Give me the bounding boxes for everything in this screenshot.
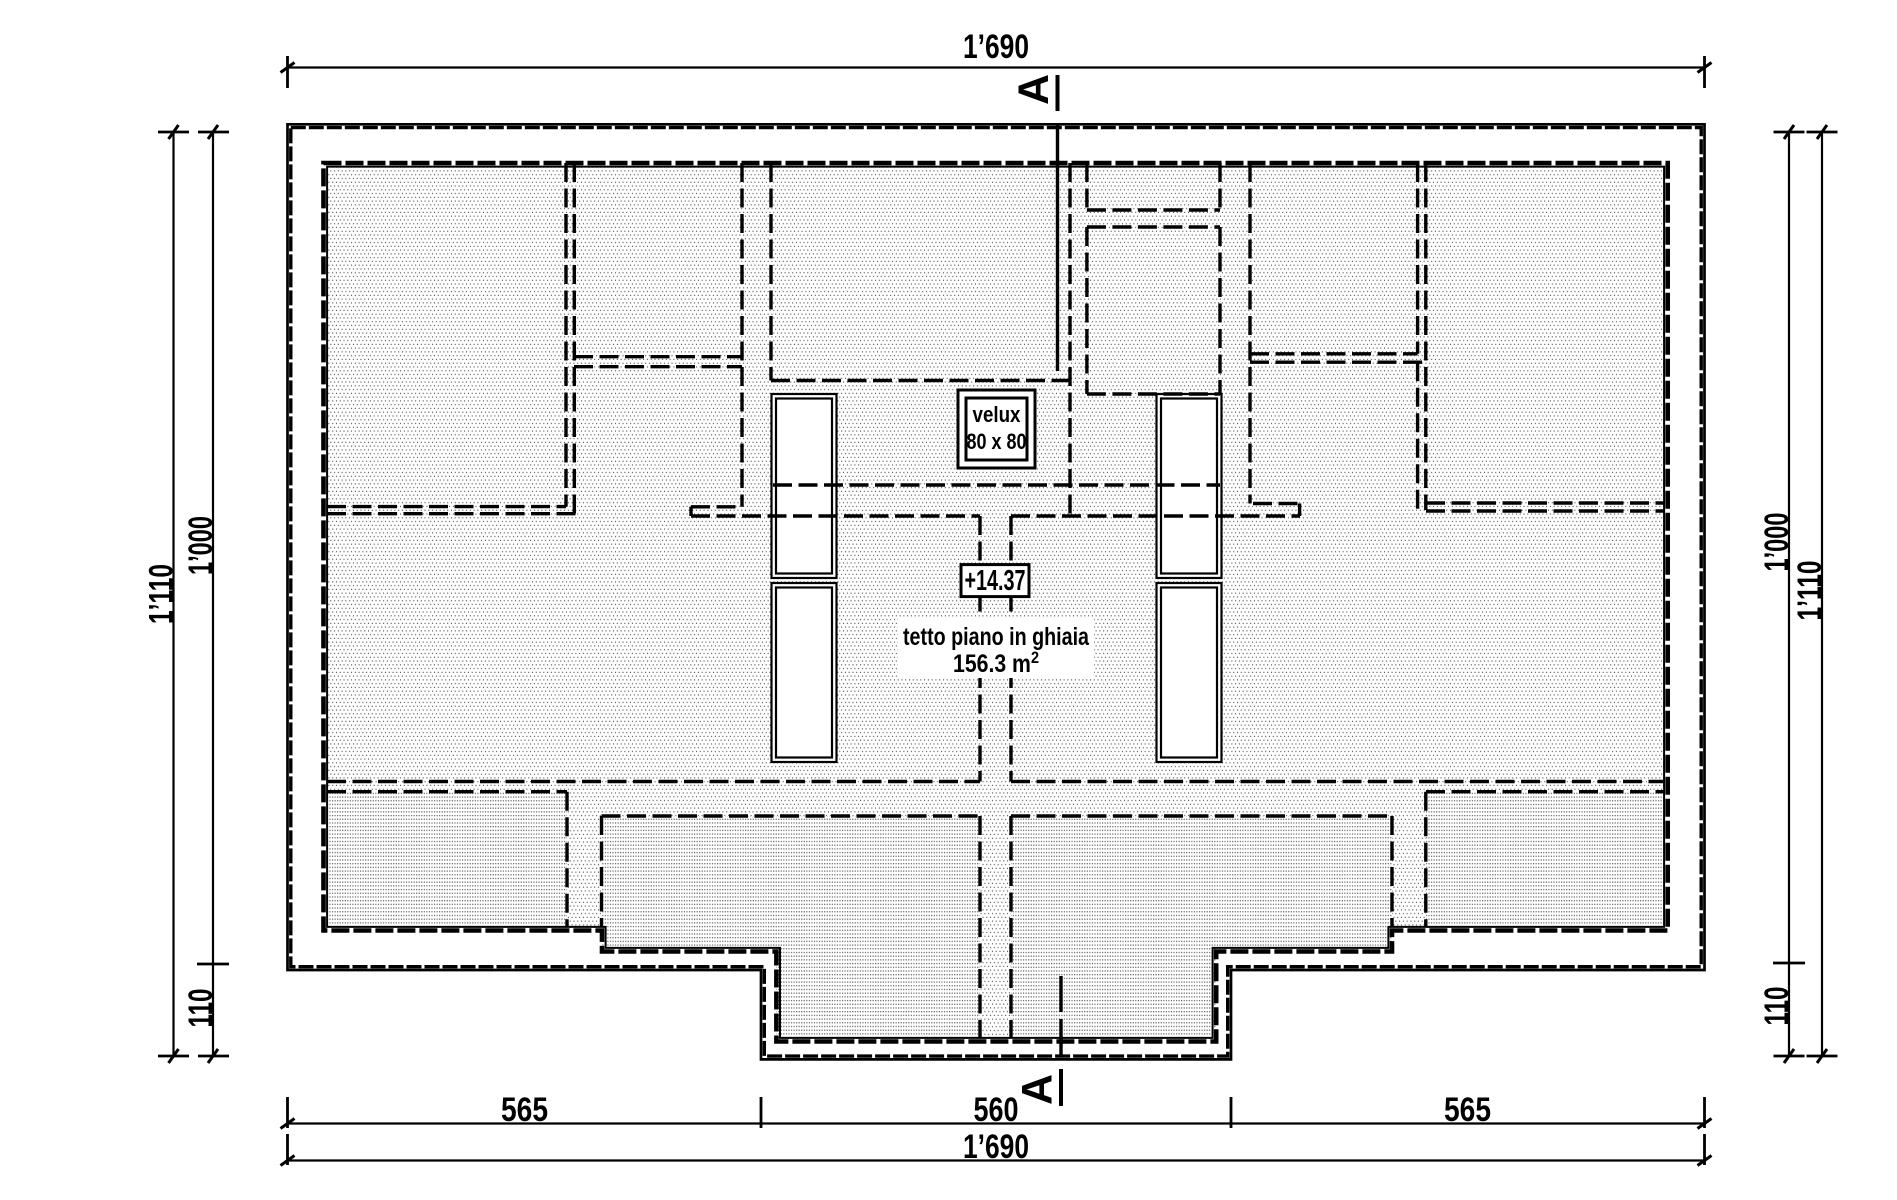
svg-text:+14.37: +14.37 (965, 565, 1026, 597)
svg-text:1’110: 1’110 (142, 564, 180, 624)
svg-text:1’690: 1’690 (963, 28, 1029, 66)
svg-text:tetto piano in ghiaia: tetto piano in ghiaia (903, 623, 1090, 651)
svg-text:565: 565 (501, 1091, 548, 1129)
svg-text:565: 565 (1444, 1091, 1491, 1129)
svg-text:110: 110 (1758, 987, 1796, 1026)
svg-text:1’690: 1’690 (963, 1128, 1029, 1166)
svg-text:A: A (1010, 74, 1058, 105)
svg-text:A: A (1014, 1074, 1062, 1105)
svg-text:velux: velux (973, 402, 1022, 427)
svg-text:1’110: 1’110 (1791, 561, 1829, 621)
svg-text:156.3 m2: 156.3 m2 (953, 648, 1039, 678)
svg-text:560: 560 (974, 1091, 1019, 1129)
svg-text:110: 110 (182, 989, 220, 1028)
svg-text:80 x 80: 80 x 80 (967, 429, 1027, 454)
svg-text:1’000: 1’000 (182, 516, 220, 575)
